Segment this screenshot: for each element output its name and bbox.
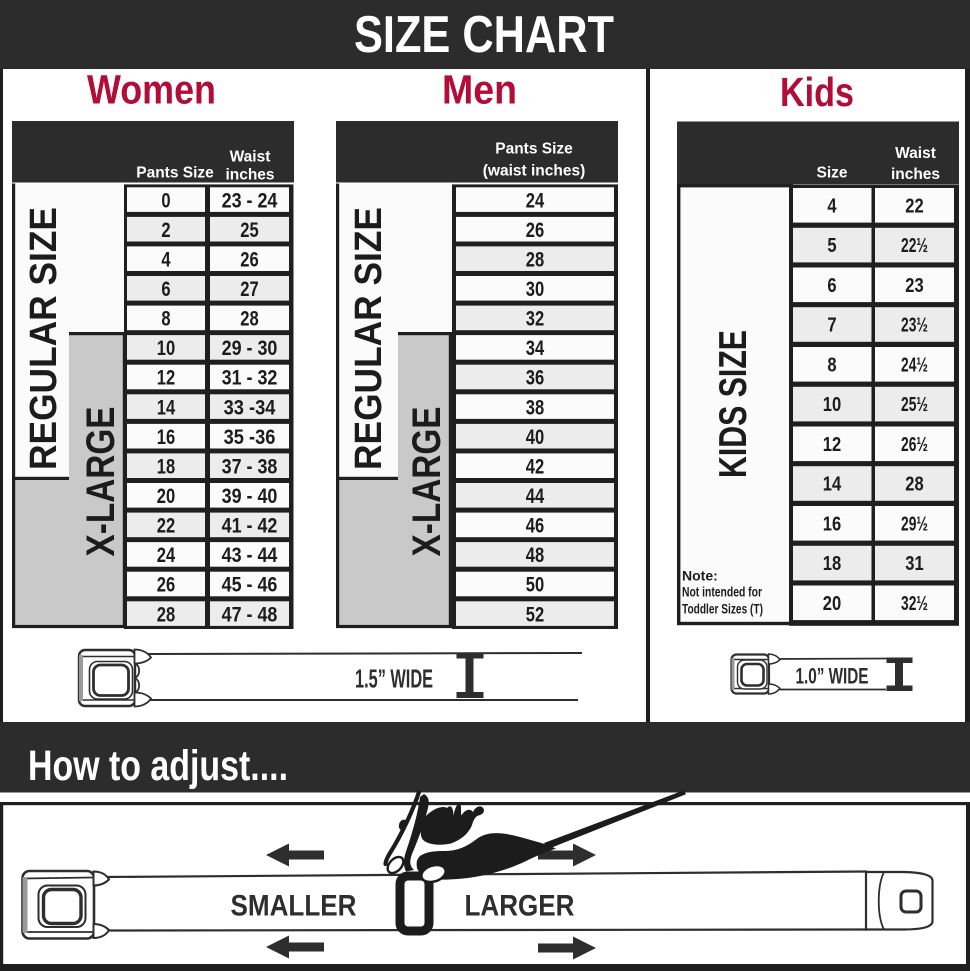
svg-text:10: 10: [823, 394, 841, 416]
svg-text:inches: inches: [225, 167, 274, 184]
svg-text:16: 16: [823, 513, 841, 535]
svg-text:39 - 40: 39 - 40: [222, 484, 278, 508]
svg-text:33 -34: 33 -34: [224, 395, 276, 419]
svg-text:7: 7: [827, 315, 836, 337]
svg-text:4: 4: [161, 247, 170, 271]
svg-text:16: 16: [157, 425, 175, 449]
svg-text:X-LARGE: X-LARGE: [79, 407, 123, 557]
svg-text:29½: 29½: [901, 513, 928, 535]
svg-text:44: 44: [526, 484, 544, 508]
svg-text:LARGER: LARGER: [465, 890, 575, 923]
svg-text:28: 28: [526, 247, 544, 271]
svg-text:14: 14: [157, 395, 175, 419]
svg-text:0: 0: [161, 188, 170, 212]
svg-text:4: 4: [827, 195, 837, 217]
svg-text:22: 22: [905, 195, 923, 217]
svg-text:52: 52: [526, 602, 544, 626]
svg-text:Kids: Kids: [780, 69, 854, 115]
svg-text:46: 46: [526, 514, 544, 538]
svg-text:25½: 25½: [901, 394, 928, 416]
svg-text:12: 12: [157, 366, 175, 390]
svg-text:26: 26: [526, 218, 544, 242]
svg-text:29 - 30: 29 - 30: [222, 336, 278, 360]
svg-text:REGULAR SIZE: REGULAR SIZE: [23, 207, 65, 470]
svg-text:REGULAR SIZE: REGULAR SIZE: [348, 207, 390, 470]
svg-text:26½: 26½: [901, 434, 928, 456]
svg-text:23 - 24: 23 - 24: [222, 188, 278, 212]
svg-text:35 -36: 35 -36: [224, 425, 276, 449]
svg-text:47 - 48: 47 - 48: [222, 602, 278, 626]
svg-text:28: 28: [240, 307, 258, 331]
svg-text:Not intended for: Not intended for: [682, 584, 762, 600]
svg-text:20: 20: [157, 484, 175, 508]
svg-text:42: 42: [526, 454, 544, 478]
svg-text:30: 30: [526, 277, 544, 301]
svg-text:23½: 23½: [901, 315, 928, 337]
svg-text:Size: Size: [816, 165, 847, 182]
svg-text:40: 40: [526, 425, 544, 449]
svg-text:41 - 42: 41 - 42: [222, 514, 278, 538]
svg-text:Women: Women: [87, 67, 216, 113]
svg-text:Pants Size: Pants Size: [136, 165, 214, 182]
svg-text:50: 50: [526, 573, 544, 597]
svg-text:31 - 32: 31 - 32: [222, 366, 278, 390]
svg-text:How to adjust....: How to adjust....: [28, 742, 288, 790]
svg-text:24: 24: [157, 543, 175, 567]
svg-text:12: 12: [823, 434, 841, 456]
svg-text:Note:: Note:: [682, 568, 718, 584]
svg-text:45 - 46: 45 - 46: [222, 573, 278, 597]
svg-text:Toddler Sizes (T): Toddler Sizes (T): [682, 600, 763, 616]
svg-text:37 - 38: 37 - 38: [222, 454, 278, 478]
svg-text:26: 26: [157, 573, 175, 597]
svg-text:Men: Men: [442, 67, 517, 113]
svg-text:SIZE CHART: SIZE CHART: [354, 6, 614, 64]
svg-text:Waist: Waist: [230, 149, 271, 166]
svg-text:inches: inches: [891, 166, 940, 183]
svg-text:25: 25: [240, 218, 258, 242]
svg-text:Pants Size: Pants Size: [495, 141, 573, 158]
svg-text:38: 38: [526, 395, 544, 419]
svg-text:48: 48: [526, 543, 544, 567]
svg-text:X-LARGE: X-LARGE: [405, 407, 449, 557]
svg-text:24½: 24½: [901, 354, 928, 376]
svg-text:32: 32: [526, 307, 544, 331]
svg-text:26: 26: [240, 247, 258, 271]
svg-text:1.5” WIDE: 1.5” WIDE: [355, 664, 433, 694]
svg-text:Waist: Waist: [895, 145, 936, 162]
svg-text:18: 18: [157, 454, 175, 478]
svg-text:8: 8: [161, 307, 170, 331]
svg-text:22: 22: [157, 514, 175, 538]
svg-text:31: 31: [905, 553, 923, 575]
svg-text:28: 28: [905, 474, 923, 496]
svg-text:8: 8: [827, 354, 836, 376]
svg-text:1.0” WIDE: 1.0” WIDE: [796, 664, 869, 689]
svg-text:34: 34: [526, 336, 544, 360]
svg-text:28: 28: [157, 602, 175, 626]
svg-text:22½: 22½: [901, 235, 928, 257]
svg-text:20: 20: [823, 593, 841, 615]
svg-text:6: 6: [827, 275, 836, 297]
svg-text:36: 36: [526, 366, 544, 390]
svg-text:(waist inches): (waist inches): [483, 163, 586, 180]
svg-text:6: 6: [161, 277, 170, 301]
svg-text:18: 18: [823, 553, 841, 575]
svg-text:43 - 44: 43 - 44: [222, 543, 278, 567]
svg-text:KIDS SIZE: KIDS SIZE: [712, 330, 755, 478]
svg-text:5: 5: [827, 235, 836, 257]
svg-text:10: 10: [157, 336, 175, 360]
svg-text:SMALLER: SMALLER: [231, 890, 357, 923]
svg-text:32½: 32½: [901, 593, 928, 615]
svg-text:27: 27: [240, 277, 258, 301]
svg-text:24: 24: [526, 188, 544, 212]
svg-text:23: 23: [905, 275, 923, 297]
svg-text:14: 14: [823, 474, 842, 496]
svg-text:2: 2: [161, 218, 170, 242]
